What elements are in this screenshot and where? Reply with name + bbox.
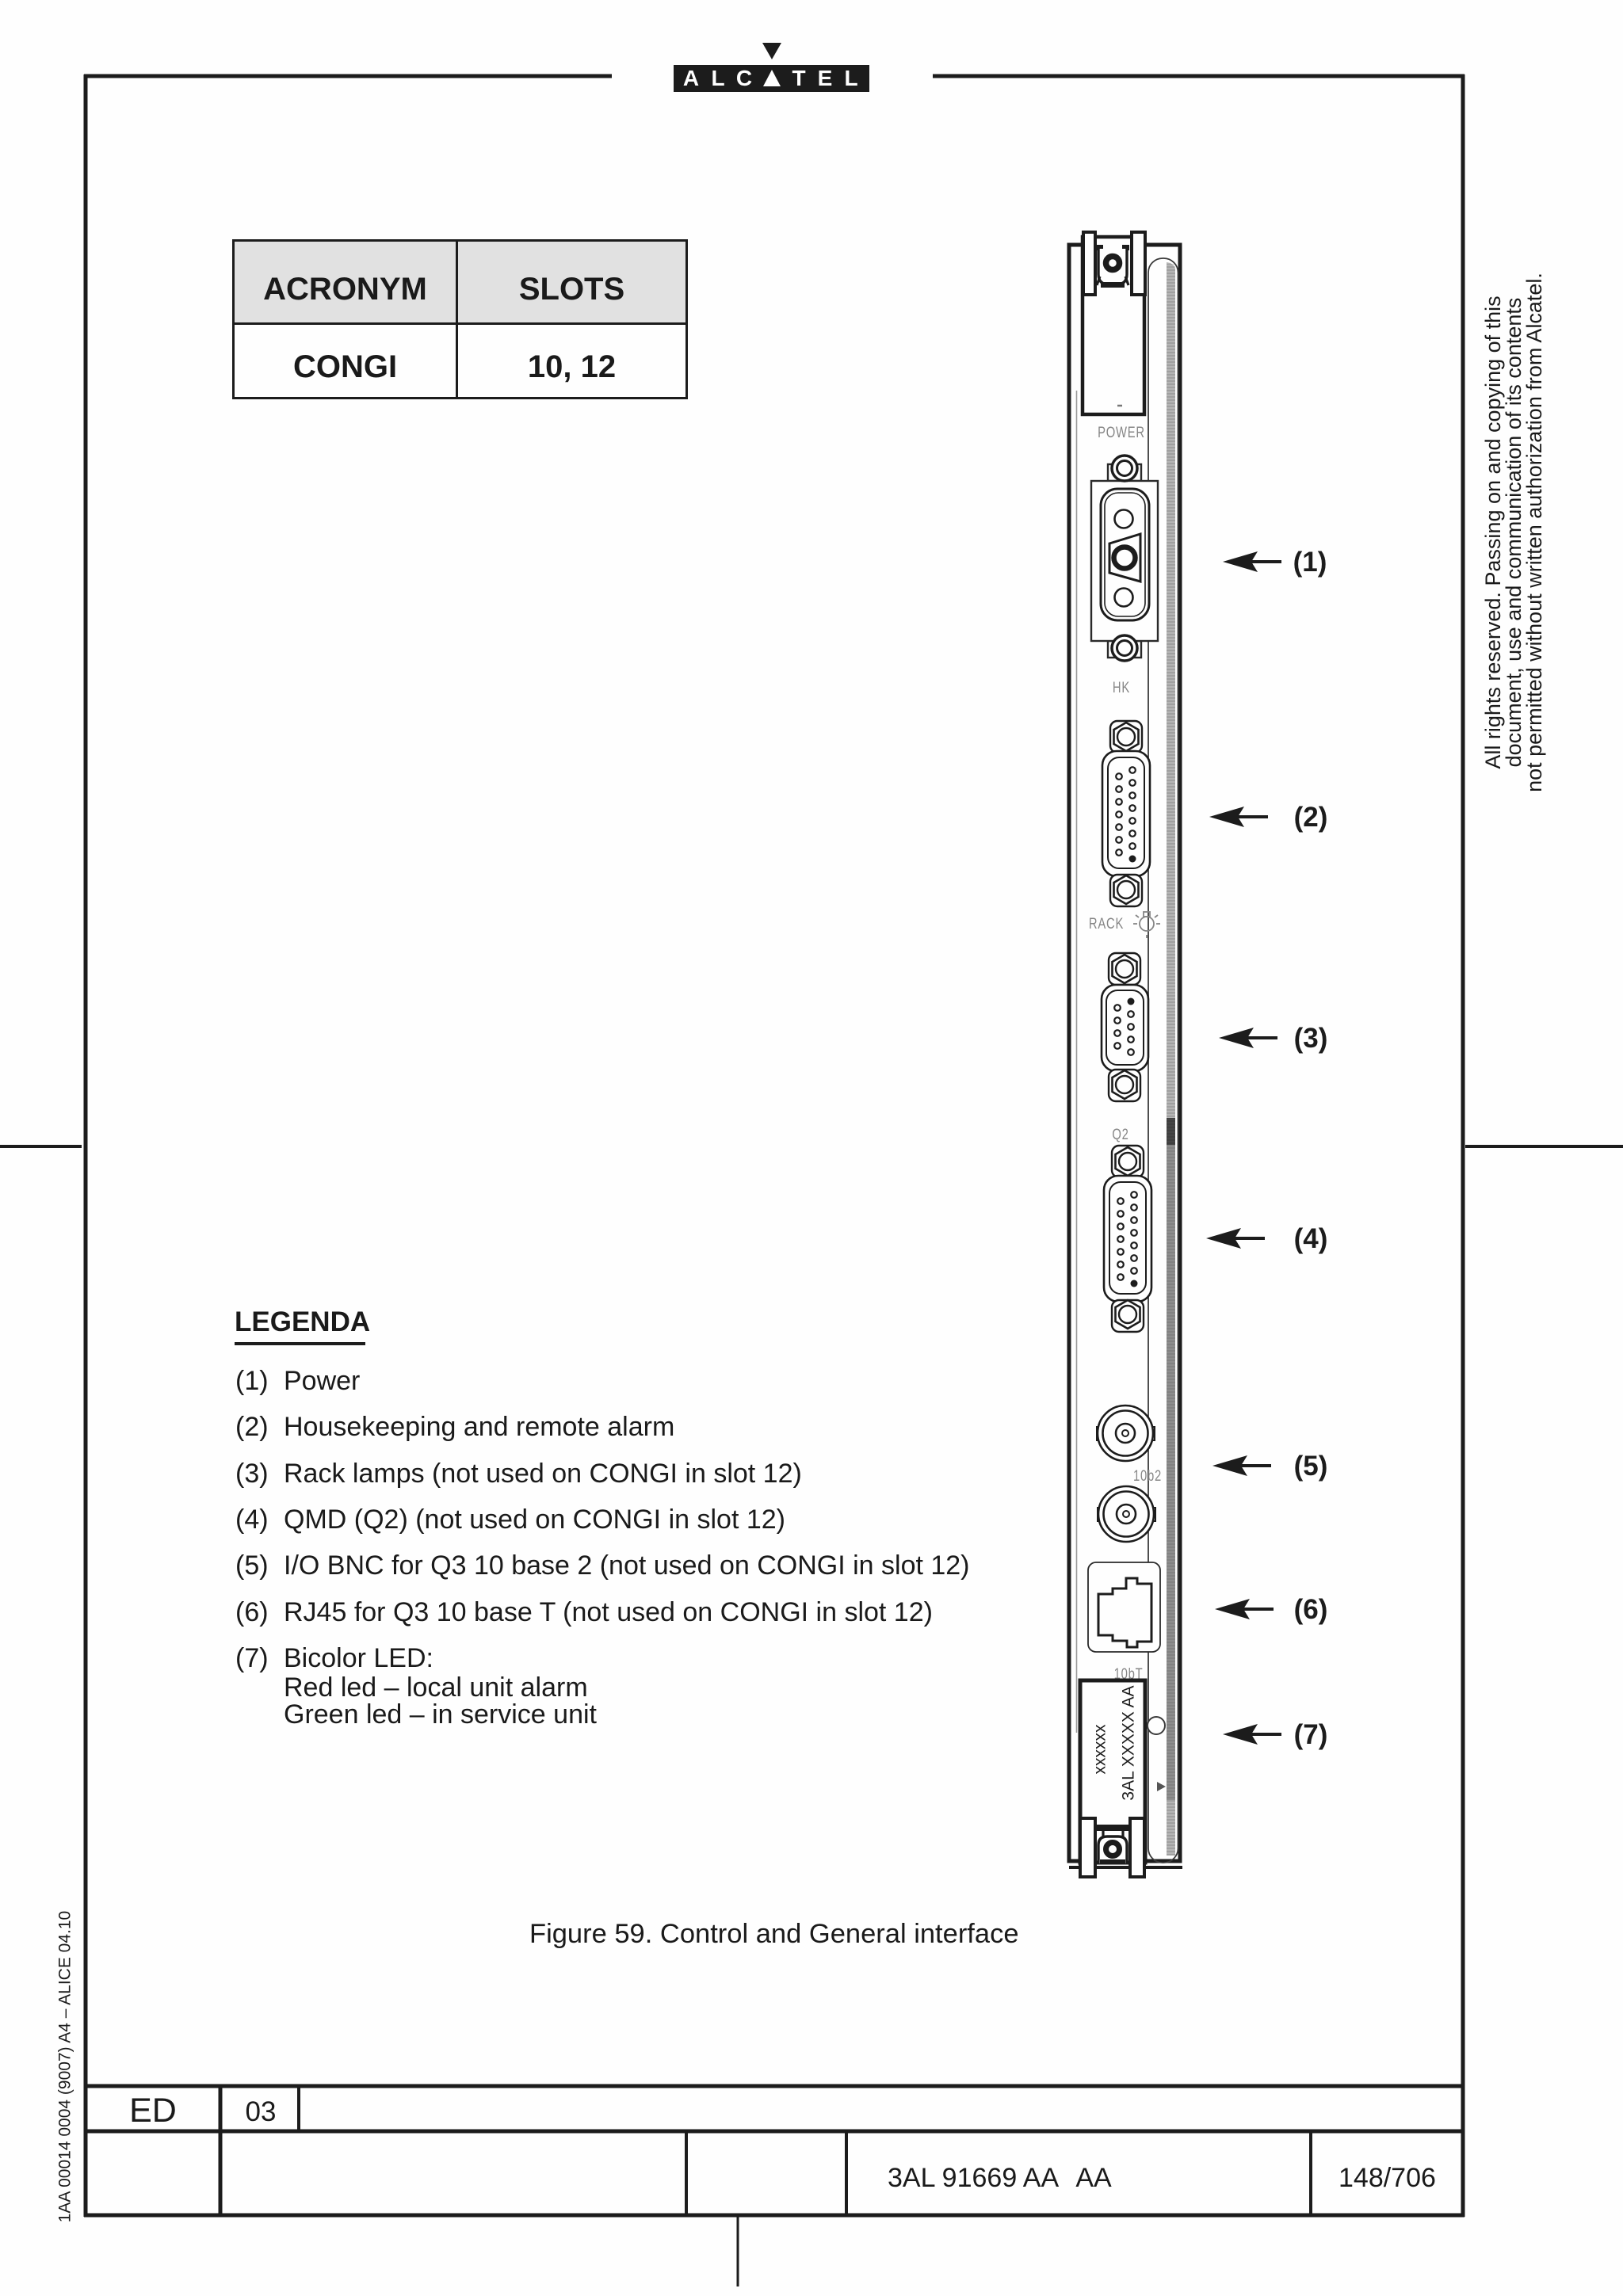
svg-text:(1): (1) (1293, 547, 1327, 578)
svg-text:POWER: POWER (1098, 424, 1145, 441)
svg-text:(4): (4) (1294, 1223, 1328, 1254)
svg-text:L: L (844, 66, 857, 90)
svg-text:A: A (683, 66, 699, 90)
svg-text:(7): (7) (1294, 1719, 1328, 1750)
svg-text:(5): (5) (1294, 1451, 1328, 1482)
svg-text:xxxxxx: xxxxxx (1091, 1724, 1109, 1775)
svg-text:(2): (2) (1294, 802, 1328, 833)
svg-text:Q2: Q2 (1112, 1126, 1128, 1142)
svg-text:T: T (792, 66, 805, 90)
svg-text:10b2: 10b2 (1133, 1467, 1162, 1484)
svg-text:3AL XXXXX AA: 3AL XXXXX AA (1120, 1685, 1138, 1800)
svg-text:L: L (711, 66, 724, 90)
svg-text:E: E (818, 66, 833, 90)
svg-text:(3): (3) (1294, 1023, 1328, 1054)
svg-text:(6): (6) (1294, 1594, 1328, 1625)
svg-text:HK: HK (1113, 679, 1130, 696)
svg-text:RACK: RACK (1089, 915, 1124, 932)
svg-text:C: C (736, 66, 752, 90)
